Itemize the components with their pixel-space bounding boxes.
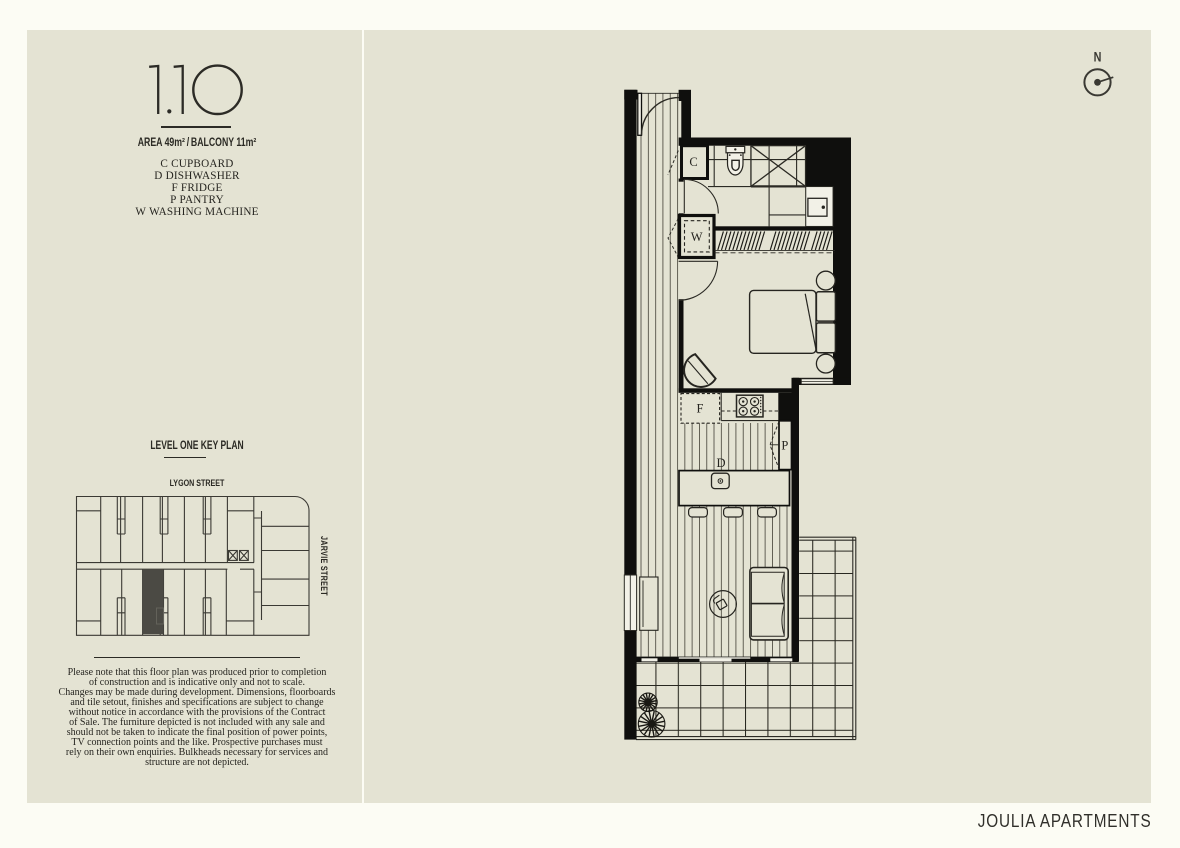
svg-text:N: N [1094,49,1102,64]
svg-text:D: D [716,456,725,470]
svg-text:F: F [697,402,704,416]
svg-text:W: W [691,230,703,244]
svg-text:C: C [689,155,697,169]
svg-text:P: P [781,438,788,452]
